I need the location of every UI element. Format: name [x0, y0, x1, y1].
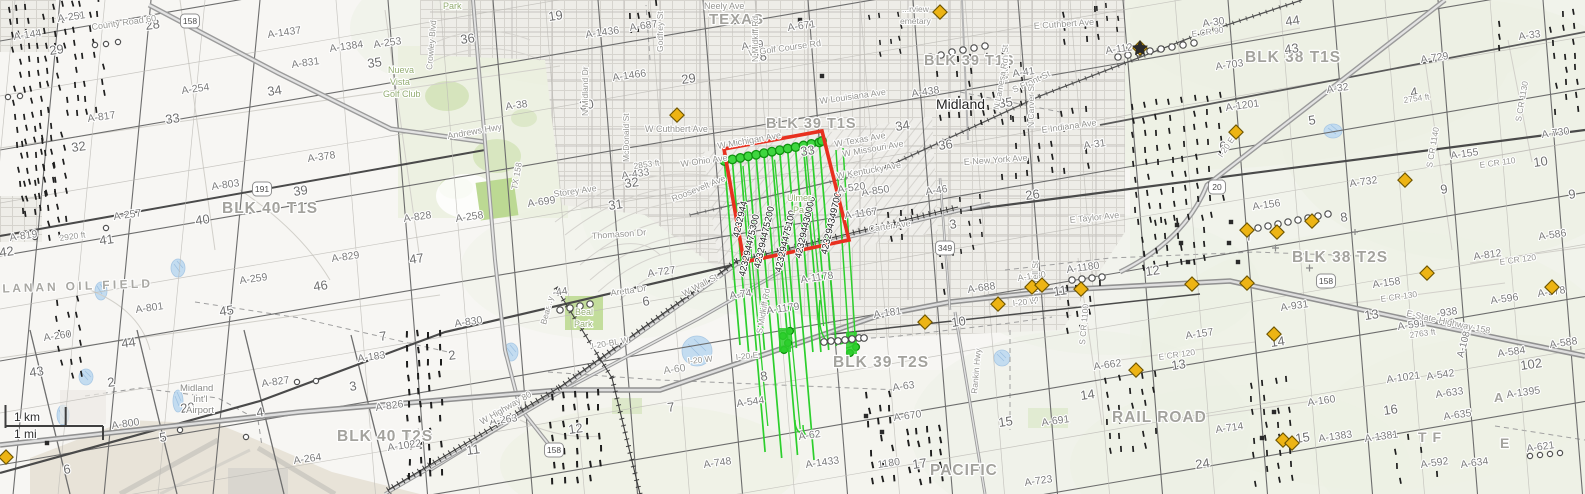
svg-text:26: 26 — [1024, 186, 1040, 203]
svg-text:24: 24 — [1194, 455, 1210, 472]
svg-text:31: 31 — [607, 196, 623, 213]
svg-text:43: 43 — [1283, 40, 1299, 57]
svg-text:BLK 40 T1S: BLK 40 T1S — [222, 200, 318, 217]
svg-text:44: 44 — [1284, 12, 1300, 29]
svg-text:12: 12 — [1144, 262, 1160, 279]
svg-text:1 mi: 1 mi — [14, 427, 37, 441]
svg-text:Int'l: Int'l — [193, 394, 208, 405]
svg-text:BLK 38 T2S: BLK 38 T2S — [1292, 249, 1388, 266]
svg-text:PACIFIC: PACIFIC — [930, 462, 998, 479]
svg-text:43: 43 — [28, 363, 44, 380]
svg-text:1 km: 1 km — [14, 410, 40, 424]
svg-text:13: 13 — [1363, 306, 1379, 323]
svg-text:Nueva: Nueva — [388, 65, 414, 75]
svg-text:42: 42 — [0, 243, 15, 260]
svg-text:...rview: ...rview — [902, 4, 930, 14]
svg-text:Midland: Midland — [180, 383, 213, 394]
svg-text:158: 158 — [547, 445, 561, 455]
svg-text:12: 12 — [567, 420, 583, 437]
svg-text:T F: T F — [1418, 429, 1442, 445]
svg-text:N Carver St: N Carver St — [1026, 83, 1036, 128]
svg-text:RAIL ROAD: RAIL ROAD — [1112, 409, 1207, 426]
svg-text:11: 11 — [1052, 282, 1067, 299]
svg-text:34: 34 — [266, 82, 282, 99]
svg-text:W Cuthbert Ave: W Cuthbert Ave — [645, 124, 708, 134]
svg-text:Golf Club: Golf Club — [383, 89, 421, 99]
svg-text:N Midkiff Rd: N Midkiff Rd — [750, 16, 760, 62]
svg-text:Godfrey St: Godfrey St — [655, 11, 665, 52]
svg-text:33: 33 — [164, 110, 180, 127]
svg-text:29: 29 — [680, 70, 696, 87]
svg-text:44: 44 — [120, 334, 136, 351]
svg-text:E: E — [1500, 435, 1510, 451]
svg-text:Park: Park — [574, 319, 593, 329]
svg-text:Park: Park — [443, 1, 462, 11]
svg-text:10: 10 — [950, 313, 966, 330]
svg-text:Beal: Beal — [575, 307, 593, 317]
svg-text:-44: -44 — [552, 285, 569, 299]
svg-text:15: 15 — [997, 413, 1013, 430]
svg-text:16: 16 — [1382, 401, 1398, 418]
svg-text:47: 47 — [408, 250, 424, 267]
svg-text:Midland: Midland — [936, 96, 985, 112]
svg-text:N Midland Dr: N Midland Dr — [580, 66, 590, 116]
svg-text:41: 41 — [98, 231, 114, 248]
svg-text:158: 158 — [1319, 276, 1333, 286]
svg-text:emetary: emetary — [900, 16, 931, 26]
svg-text:A: A — [1494, 390, 1504, 405]
svg-text:349: 349 — [938, 243, 952, 253]
svg-text:191: 191 — [255, 184, 269, 194]
svg-text:32: 32 — [70, 138, 86, 155]
svg-text:Pa: Pa — [793, 205, 804, 215]
svg-text:32: 32 — [623, 174, 639, 191]
svg-text:20: 20 — [1212, 182, 1222, 192]
svg-text:Airport: Airport — [186, 405, 214, 416]
svg-text:34: 34 — [894, 117, 910, 134]
svg-text:158: 158 — [183, 16, 197, 26]
svg-text:Vista: Vista — [390, 77, 410, 87]
svg-text:McDonald St: McDonald St — [621, 113, 631, 162]
svg-text:33: 33 — [799, 142, 815, 159]
svg-text:39: 39 — [292, 182, 308, 199]
svg-text:46: 46 — [312, 277, 328, 294]
svg-text:40: 40 — [194, 211, 210, 228]
svg-text:10: 10 — [1532, 153, 1548, 170]
svg-text:29: 29 — [48, 41, 64, 58]
svg-text:Ulmer: Ulmer — [787, 193, 811, 203]
svg-text:19: 19 — [547, 7, 563, 24]
svg-text:Neely Ave: Neely Ave — [704, 1, 744, 11]
svg-text:45: 45 — [218, 302, 234, 319]
svg-text:102: 102 — [1519, 355, 1543, 373]
svg-text:17: 17 — [911, 455, 927, 472]
svg-text:11: 11 — [465, 441, 480, 458]
svg-text:35: 35 — [366, 54, 382, 71]
svg-text:BLK 39 T2S: BLK 39 T2S — [833, 354, 929, 371]
svg-text:36: 36 — [459, 30, 475, 47]
svg-text:36: 36 — [937, 136, 953, 153]
svg-text:14: 14 — [1079, 386, 1095, 403]
